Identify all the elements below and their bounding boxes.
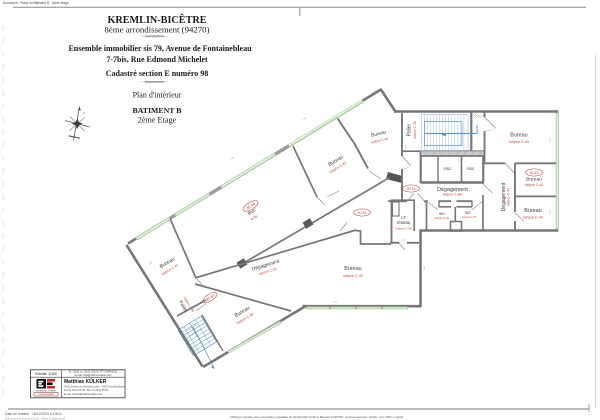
svg-text:Bureau: Bureau (526, 177, 542, 183)
svg-text:7-7bis, Rue Edmond Michelet: 7-7bis, Rue Edmond Michelet (106, 55, 208, 64)
svg-text:Asc.: Asc. (467, 166, 476, 171)
svg-text:lot/pce C-28: lot/pce C-28 (395, 227, 412, 231)
svg-text:Document : Plans du Bâtiment B: Document : Plans du Bâtiment B - 2ème ét… (3, 1, 69, 5)
svg-text:BATIMENT B: BATIMENT B (133, 106, 182, 115)
svg-text:30.43: 30.43 (407, 187, 416, 191)
svg-text:FONCIER AGRAIRE: FONCIER AGRAIRE (38, 393, 54, 396)
svg-text:Echelle: 1/100: Echelle: 1/100 (35, 372, 57, 376)
svg-text:Bureau: Bureau (510, 133, 527, 139)
svg-text:Bureau: Bureau (524, 208, 541, 214)
svg-text:lot/pce C-44: lot/pce C-44 (523, 216, 543, 220)
svg-text:lot/pce C-44: lot/pce C-44 (507, 188, 511, 206)
svg-text:Asc.: Asc. (444, 166, 453, 171)
svg-text:lot/pce C-26: lot/pce C-26 (435, 216, 450, 220)
svg-text:Cadastré section E numéro 98: Cadastré section E numéro 98 (106, 69, 209, 78)
svg-text:lot/pce C-44: lot/pce C-44 (509, 140, 529, 144)
svg-text:lot/pce C-27: lot/pce C-27 (462, 215, 477, 219)
svg-text:réseau: réseau (397, 220, 411, 225)
svg-text:E-mail: Sige@cabinet-kulker.co: E-mail: Sige@cabinet-kulker.com (75, 374, 112, 377)
svg-text:30.43: 30.43 (358, 211, 367, 215)
svg-text:lot/pce C-30: lot/pce C-30 (413, 121, 417, 138)
svg-text:8ème arrondissement (94270): 8ème arrondissement (94270) (104, 24, 209, 34)
svg-text:Palier: Palier (407, 123, 413, 136)
svg-text:Visé pour être annexé à l'acte: Visé pour être annexé à l'acte - Plans d… (5, 416, 65, 420)
svg-text:lot/pce C-44: lot/pce C-44 (525, 183, 543, 187)
svg-text:lot/pce C-38: lot/pce C-38 (443, 192, 462, 196)
svg-text:Plan d'intérieur: Plan d'intérieur (133, 91, 182, 100)
svg-text:WC: WC (439, 212, 446, 216)
svg-text:WC: WC (465, 211, 472, 215)
svg-text:Ensemble immobilier sis 79, Av: Ensemble immobilier sis 79, Avenue de Fo… (68, 44, 252, 53)
svg-text:Date de l'édition : 16/12/202: Date de l'édition : 16/12/2020 à 13h11 (5, 412, 62, 416)
svg-text:Bureau: Bureau (344, 266, 361, 272)
svg-text:E-mail: contact@cabinet-kulker: E-mail: contact@cabinet-kulker.com (64, 393, 102, 396)
svg-text:lot/pce C-43: lot/pce C-43 (343, 274, 363, 278)
svg-text:2ème Etage: 2ème Etage (138, 116, 177, 125)
svg-text:N: N (83, 111, 85, 115)
svg-text:Diffusion interdite sans autor: Diffusion interdite sans autorisation pr… (230, 415, 403, 419)
svg-text:30.43: 30.43 (530, 171, 539, 175)
svg-text:Tél: 01 45 21 05 08 - Fax: 0: Tél: 01 45 21 05 08 - Fax: 01 45 21 05 0… (64, 389, 109, 392)
svg-text:78 bis Avenue du Général Lecle: 78 bis Avenue du Général Leclerc - 94270… (64, 386, 126, 389)
svg-text:Matthias KÜLKER: Matthias KÜLKER (64, 378, 107, 385)
svg-text:GEOMETRE - EXPERT: GEOMETRE - EXPERT (36, 390, 57, 392)
